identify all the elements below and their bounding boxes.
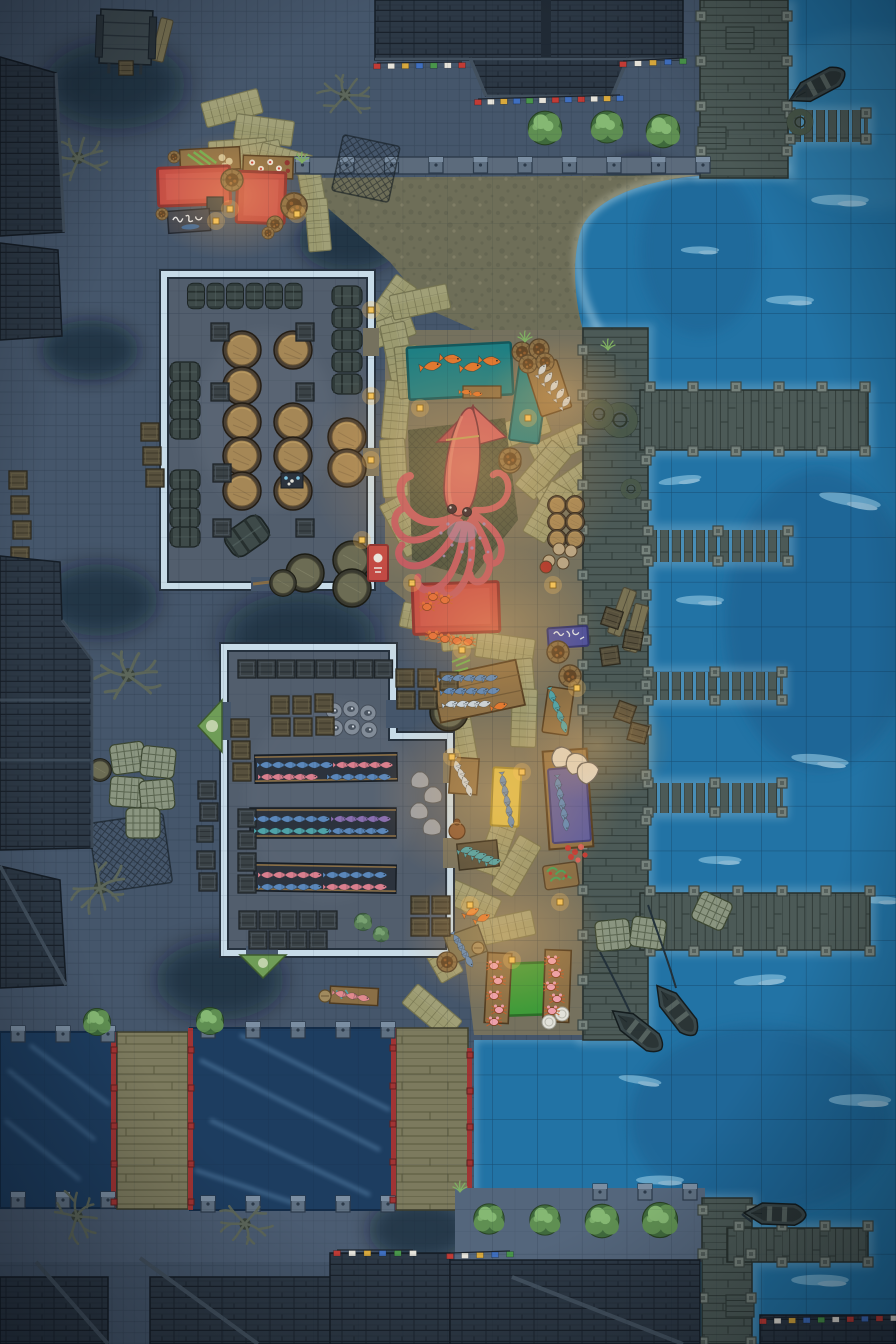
battle-map-canvas[interactable]: Dockside Fish Market at Night [0,0,896,1344]
vignette [0,0,896,1344]
